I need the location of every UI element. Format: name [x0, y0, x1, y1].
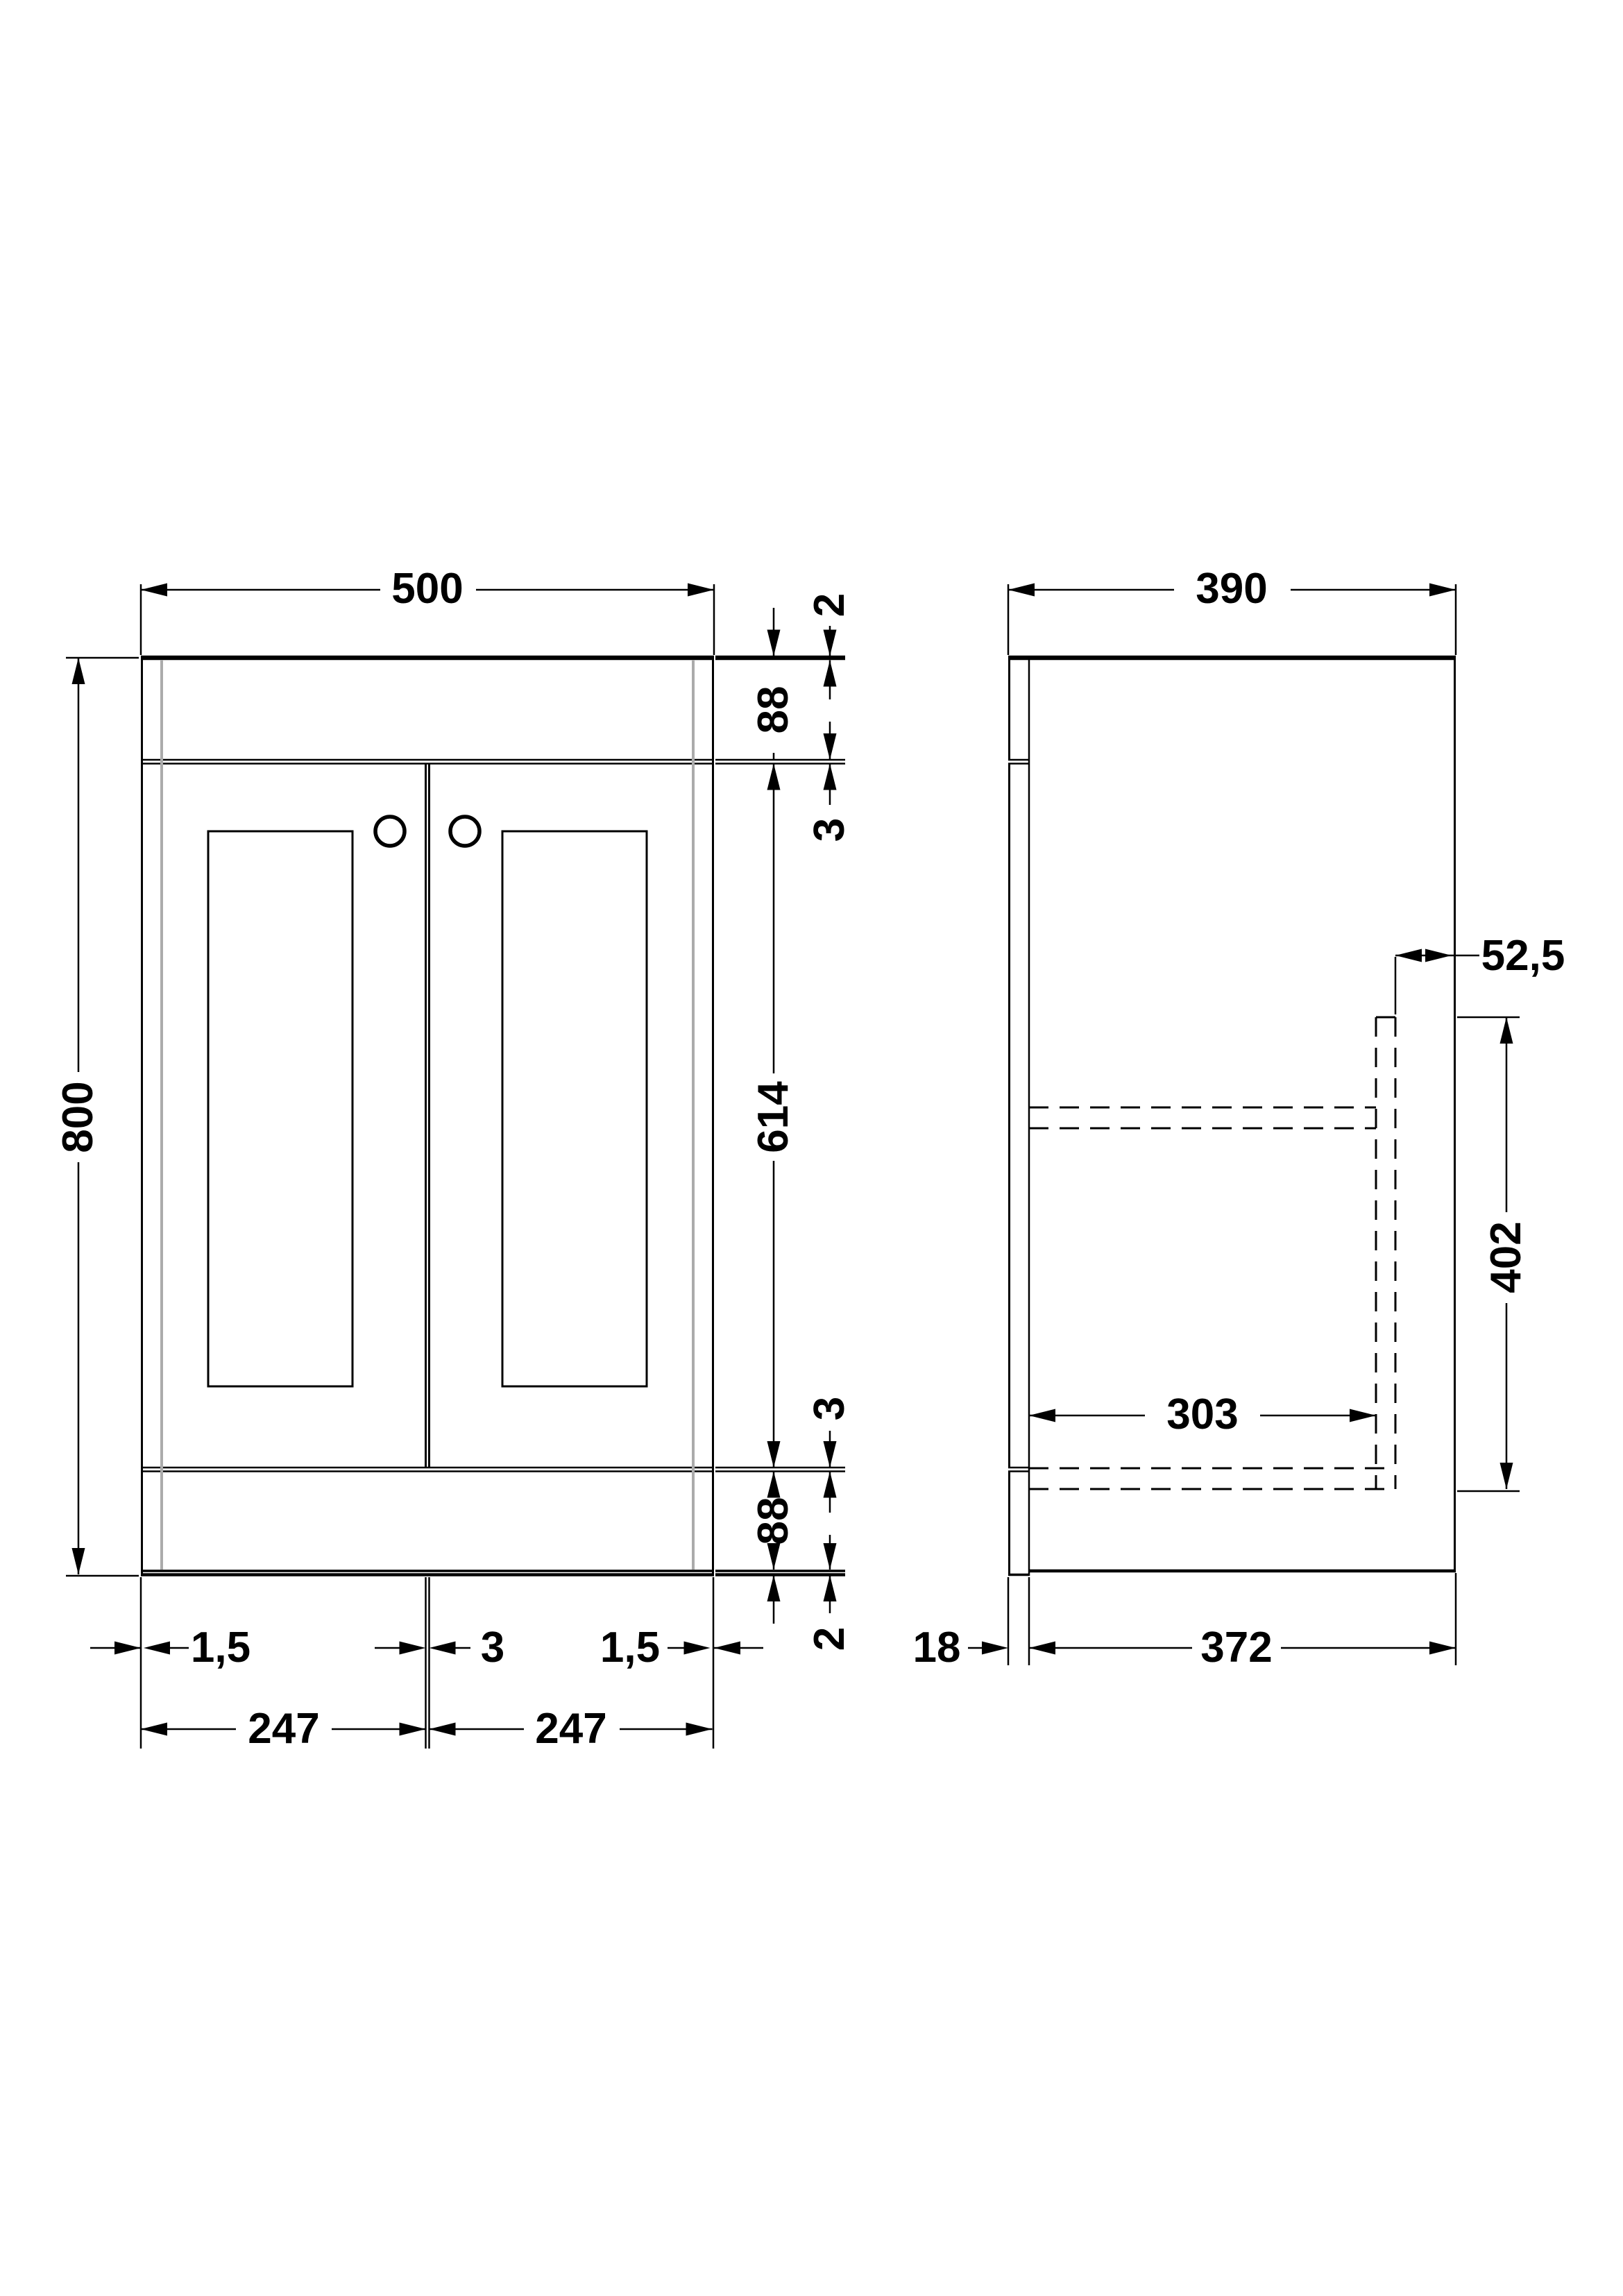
arrow-up-icon [767, 1472, 781, 1498]
arrow-up-icon [824, 1472, 837, 1498]
arrow-right-icon [686, 1723, 713, 1736]
dim-internal-depth: 303 [1166, 1391, 1238, 1438]
arrow-left-icon [1029, 1409, 1055, 1422]
arrow-left-icon [141, 1723, 167, 1736]
arrow-right-icon [400, 1723, 426, 1736]
arrow-up-icon [72, 658, 85, 684]
dim-top-gap: 3 [806, 818, 853, 842]
front-panel-gap-caps [1008, 760, 1029, 1472]
dim-center-gap: 3 [481, 1624, 504, 1672]
dim-top-rail: 88 [749, 686, 797, 734]
side-dimensions: 390 52,5 402 303 18 372 [913, 565, 1565, 1672]
arrow-right-icon [114, 1642, 141, 1655]
dim-door-right-width: 247 [535, 1705, 606, 1753]
arrow-down-icon [824, 630, 837, 656]
arrow-up-icon [824, 661, 837, 687]
arrow-left-icon [1395, 949, 1422, 962]
arrow-left-icon [430, 1723, 456, 1736]
arrow-right-icon [1429, 584, 1456, 597]
arrow-right-icon [400, 1642, 426, 1655]
dim-front-thickness: 18 [913, 1624, 961, 1672]
arrow-up-icon [767, 1575, 781, 1601]
dim-front-height: 800 [54, 1081, 102, 1153]
right-door-panel [502, 831, 647, 1386]
arrow-down-icon [767, 630, 781, 656]
arrow-down-icon [824, 733, 837, 760]
arrow-up-icon [1500, 1017, 1513, 1044]
arrow-left-icon [714, 1642, 740, 1655]
arrow-right-icon [1429, 1642, 1456, 1655]
left-door-handle [375, 817, 405, 846]
arrow-right-icon [684, 1642, 711, 1655]
dim-bottom-lip: 2 [806, 1627, 853, 1651]
arrow-up-icon [767, 764, 781, 790]
dim-back-panel-height: 402 [1482, 1221, 1530, 1293]
front-view [141, 658, 714, 1576]
dim-edge-gap-right: 1,5 [600, 1624, 660, 1672]
vanity-unit-dimension-drawing: 500 800 88 614 88 2 3 3 [0, 0, 1623, 2296]
arrow-down-icon [72, 1548, 85, 1574]
dim-door-left-width: 247 [248, 1705, 319, 1753]
bottom-board-hidden [1029, 1468, 1395, 1489]
dim-edge-gap-left: 1,5 [191, 1624, 250, 1672]
arrow-right-icon [982, 1642, 1008, 1655]
back-panel-hidden [1376, 1017, 1395, 1489]
arrow-up-icon [824, 1575, 837, 1601]
dim-bottom-gap: 3 [806, 1397, 853, 1420]
arrow-down-icon [767, 1543, 781, 1570]
arrow-down-icon [767, 1441, 781, 1468]
arrow-right-icon [688, 584, 714, 597]
arrow-left-icon [1029, 1642, 1055, 1655]
dim-top-lip: 2 [806, 593, 853, 617]
dim-front-width: 500 [391, 565, 463, 613]
arrow-down-icon [824, 1441, 837, 1468]
arrow-up-icon [824, 764, 837, 790]
arrow-right-icon [1425, 949, 1452, 962]
left-door-panel [208, 831, 352, 1386]
door-center-split [426, 764, 430, 1468]
arrow-left-icon [1008, 584, 1035, 597]
dim-body-depth: 372 [1200, 1624, 1272, 1672]
arrow-left-icon [144, 1642, 170, 1655]
dim-back-offset: 52,5 [1481, 932, 1565, 980]
arrow-left-icon [430, 1642, 456, 1655]
dim-bottom-rail: 88 [749, 1497, 797, 1545]
dim-side-depth: 390 [1196, 565, 1267, 613]
arrow-right-icon [1350, 1409, 1376, 1422]
shelf-hidden [1029, 1107, 1376, 1128]
arrow-left-icon [141, 584, 167, 597]
right-door-handle [450, 817, 479, 846]
front-door-bottom-gap [141, 1468, 714, 1472]
arrow-down-icon [1500, 1463, 1513, 1489]
technical-drawing-page: 500 800 88 614 88 2 3 3 [0, 0, 1623, 2296]
front-top-rail-bottom [141, 760, 714, 764]
arrow-down-icon [824, 1543, 837, 1570]
dim-door-height: 614 [749, 1081, 797, 1153]
